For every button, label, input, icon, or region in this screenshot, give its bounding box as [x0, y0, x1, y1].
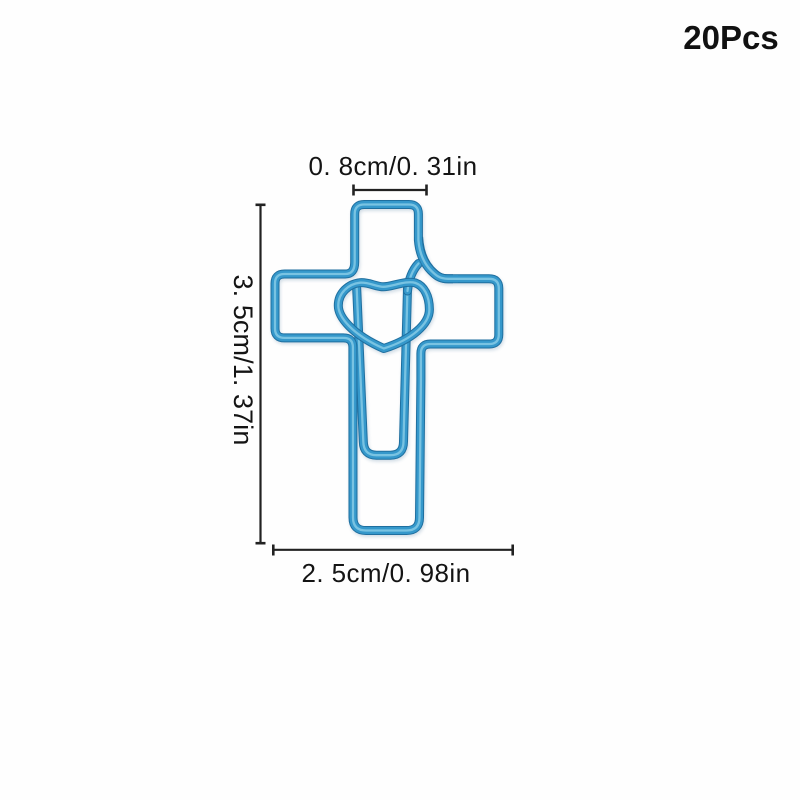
- svg-text:0. 8cm/0. 31in: 0. 8cm/0. 31in: [309, 151, 478, 181]
- svg-text:20Pcs: 20Pcs: [683, 19, 778, 56]
- svg-text:3. 5cm/1. 37in: 3. 5cm/1. 37in: [228, 275, 258, 446]
- svg-text:2. 5cm/0. 98in: 2. 5cm/0. 98in: [302, 558, 471, 588]
